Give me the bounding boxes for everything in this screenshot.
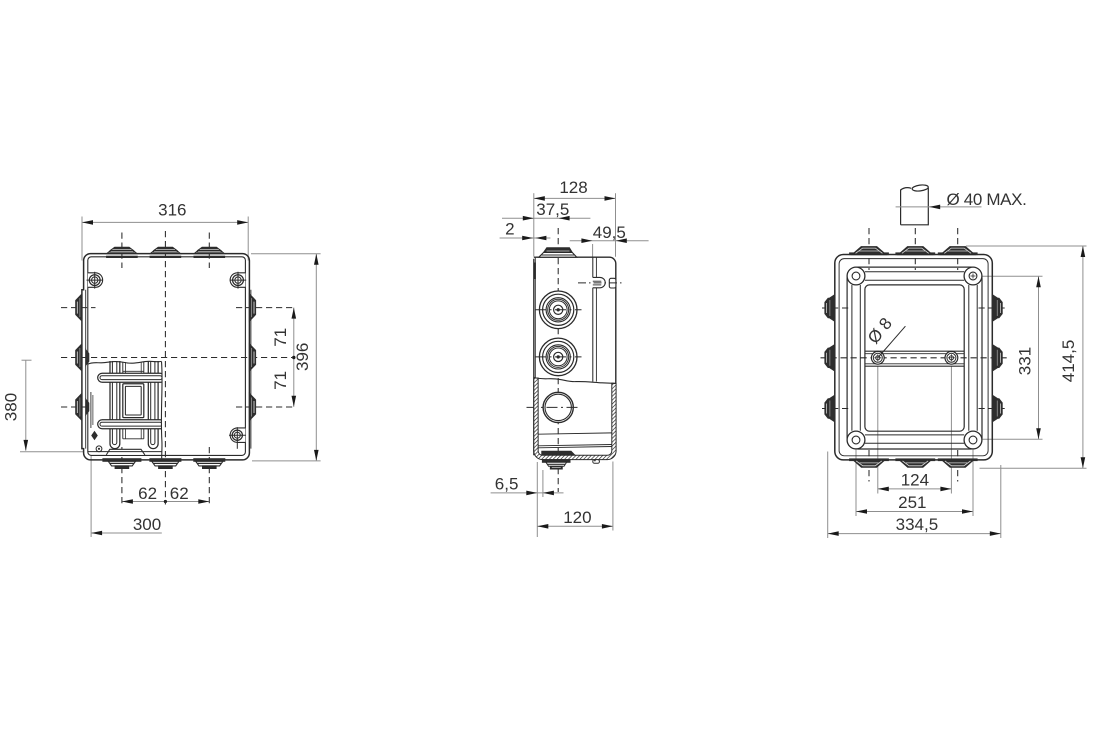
- svg-text:334,5: 334,5: [896, 515, 939, 534]
- svg-text:62: 62: [138, 484, 157, 503]
- svg-text:62: 62: [170, 484, 189, 503]
- svg-text:251: 251: [898, 493, 926, 512]
- svg-text:316: 316: [158, 201, 186, 220]
- svg-text:300: 300: [133, 515, 161, 534]
- svg-text:2: 2: [505, 220, 514, 239]
- svg-text:124: 124: [901, 471, 929, 490]
- svg-text:331: 331: [1015, 347, 1034, 375]
- svg-text:396: 396: [293, 343, 312, 371]
- svg-text:71: 71: [271, 328, 290, 347]
- svg-text:380: 380: [2, 393, 21, 421]
- svg-text:49,5: 49,5: [593, 223, 626, 242]
- svg-text:71: 71: [271, 371, 290, 390]
- svg-text:37,5: 37,5: [536, 200, 569, 219]
- svg-text:128: 128: [559, 178, 587, 197]
- svg-text:120: 120: [563, 508, 591, 527]
- svg-text:414,5: 414,5: [1059, 340, 1078, 383]
- svg-text:Ø 40 MAX.: Ø 40 MAX.: [947, 190, 1027, 209]
- svg-text:6,5: 6,5: [495, 475, 519, 494]
